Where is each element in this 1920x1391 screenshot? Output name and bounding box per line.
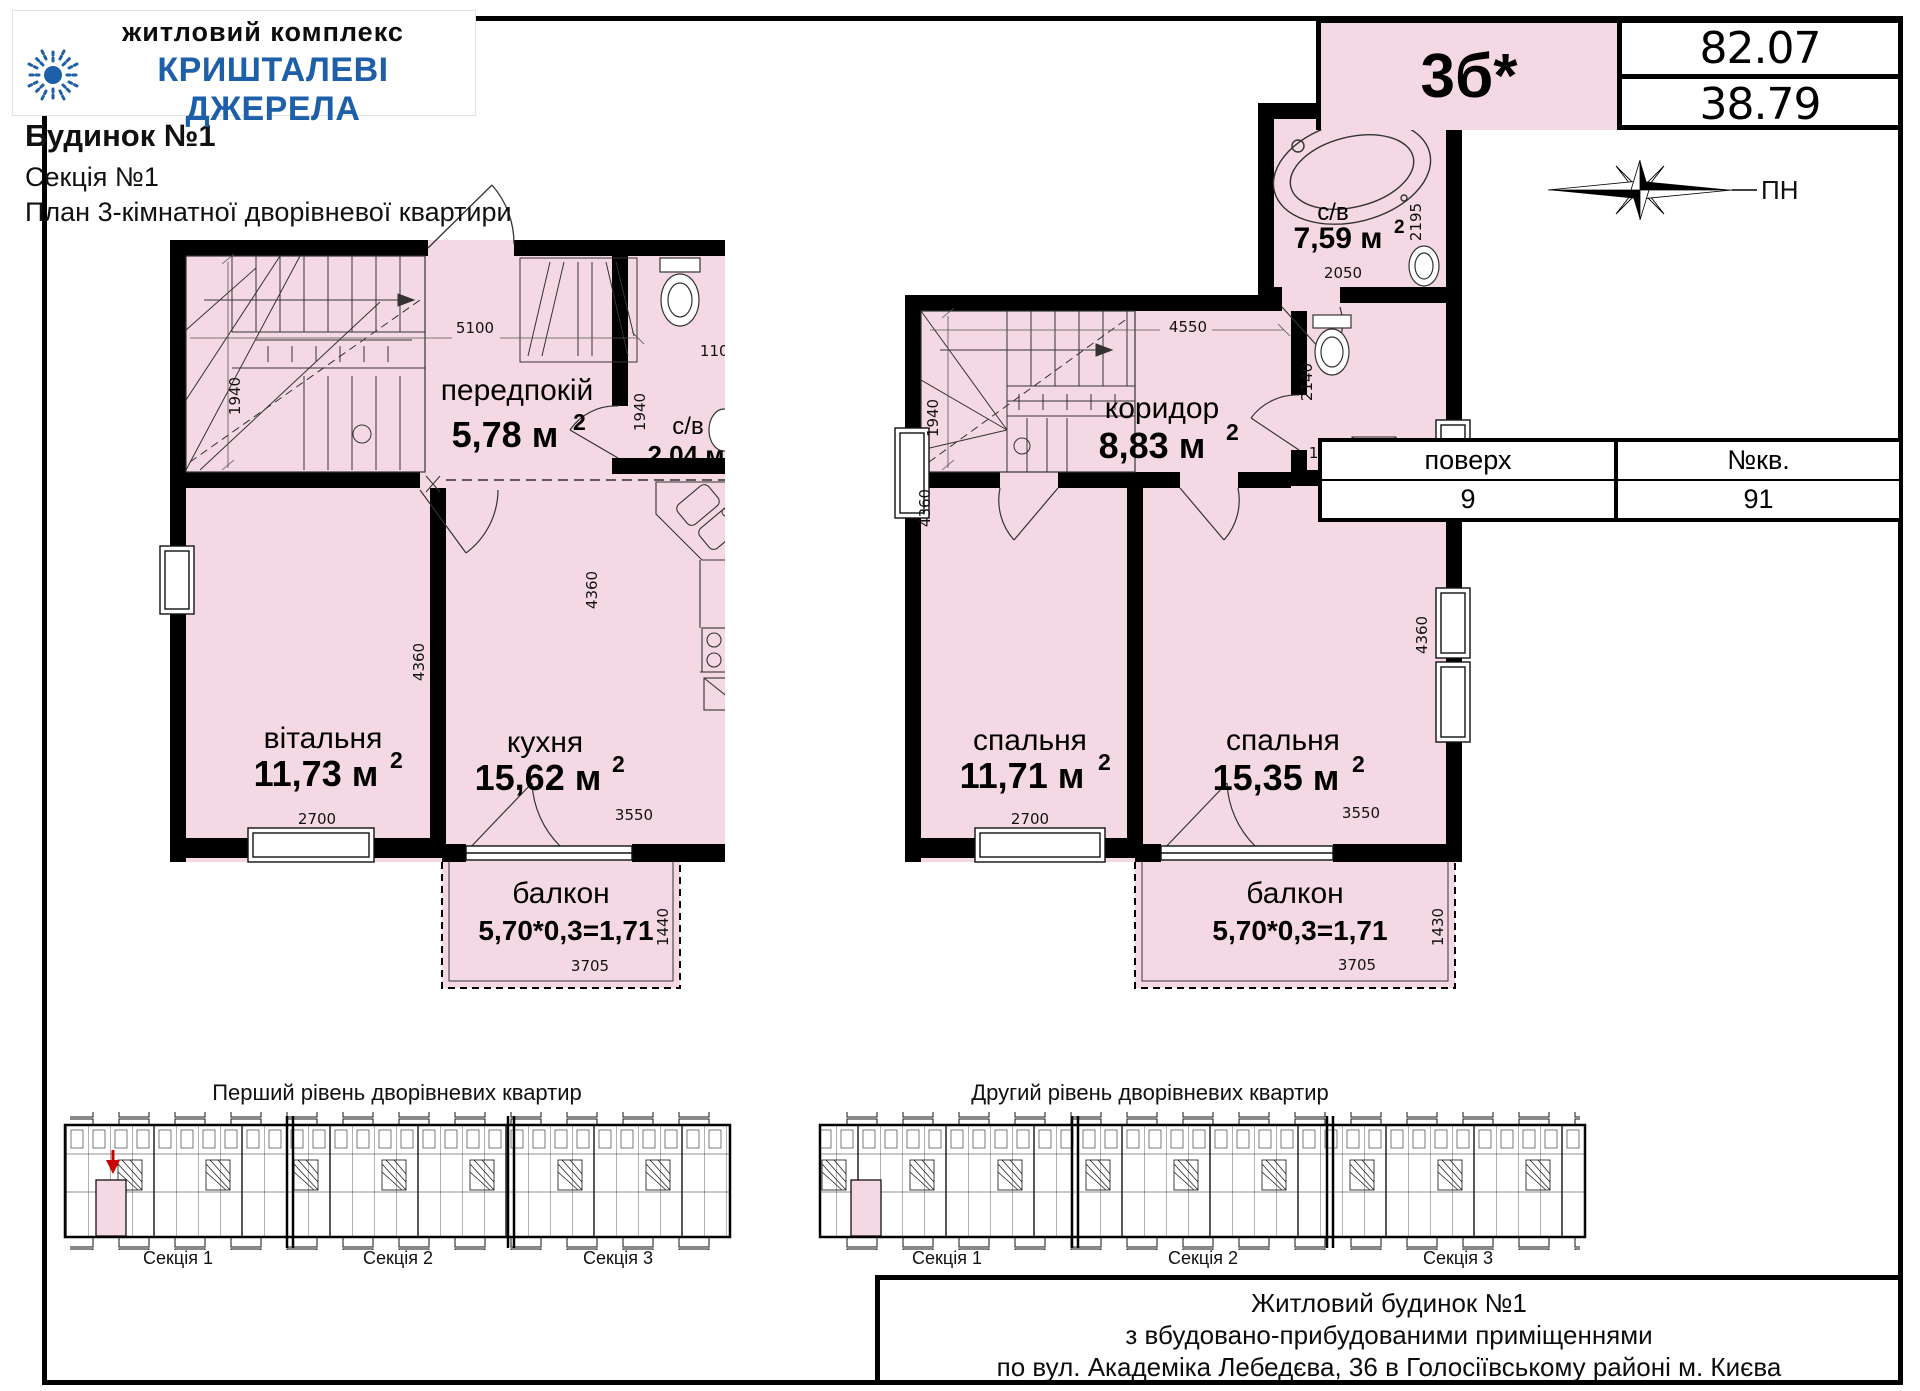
floor-value: 9	[1322, 481, 1614, 518]
room-hall-area: 5,78 м	[452, 414, 559, 455]
second-strip-section1-label: Секція 1	[877, 1248, 1017, 1269]
room-bath1-name: с/в	[672, 413, 703, 440]
first-strip-section2-label: Секція 2	[328, 1248, 468, 1269]
logo-subtitle: житловий комплекс	[83, 17, 443, 48]
room-bath2-area: 7,59 м	[1294, 222, 1383, 255]
building-overview-first-level	[60, 1100, 750, 1260]
second-strip-section3-label: Секція 3	[1388, 1248, 1528, 1269]
highlighted-apartment-1	[96, 1180, 126, 1236]
room-bed1-area-sup: 2	[1098, 749, 1111, 775]
dim-l1-top: 5100	[456, 319, 494, 337]
room-bath2-area-sup: 2	[1394, 217, 1405, 238]
dim-l1-kitchen-w: 3550	[615, 806, 653, 824]
header: Будинок №1 Секція №1 План 3-кімнатної дв…	[25, 118, 545, 232]
room-living-area: 11,73 м	[254, 753, 379, 794]
room-corridor-area: 8,83 м	[1099, 425, 1206, 466]
room-kitchen-name: кухня	[507, 726, 583, 759]
building-strip-2	[820, 1112, 1585, 1250]
compass: ПН	[1530, 145, 1810, 240]
apartment-column-header: №кв.	[1614, 442, 1899, 481]
room-corridor-area-sup: 2	[1226, 419, 1239, 445]
dim-l2-bath-w: 2050	[1324, 264, 1362, 282]
room-balcony1-name: балкон	[512, 877, 609, 910]
sink2	[1409, 246, 1439, 286]
unit-area-total: 82.07	[1617, 23, 1898, 79]
floor-column-header: поверх	[1322, 442, 1614, 481]
dim-l1-kitchen-h: 4360	[583, 571, 601, 609]
room-hall-area-sup: 2	[573, 409, 586, 435]
title-block-line3: по вул. Академіка Лебедєва, 36 в Голосії…	[880, 1351, 1898, 1383]
room-corridor-name: коридор	[1105, 392, 1219, 425]
dim-l2-bath-h: 2195	[1407, 203, 1425, 241]
building-strip-1	[65, 1112, 730, 1250]
room-bed2-area-sup: 2	[1352, 751, 1365, 777]
title-block-line1: Житловий будинок №1	[880, 1287, 1898, 1319]
room-living-area-sup: 2	[390, 747, 403, 773]
dim-l2-balcony-w: 3705	[1338, 956, 1376, 974]
dim-l2-bed2-h: 4360	[1413, 616, 1431, 654]
dim-l1-bath-w: 1100	[700, 342, 725, 360]
room-balcony2-area: 5,70*0,3=1,71	[1212, 915, 1387, 946]
room-bed1-name: спальня	[973, 724, 1087, 757]
room-bed1-area: 11,71 м	[960, 755, 1085, 796]
room-balcony1-area: 5,70*0,3=1,71	[478, 915, 653, 946]
logo-name: КРИШТАЛЕВІ ДЖЕРЕЛА	[75, 51, 471, 129]
first-strip-section1-label: Секція 1	[108, 1248, 248, 1269]
dim-l2-bed2-w: 3550	[1342, 804, 1380, 822]
room-living-name: вітальня	[264, 722, 383, 755]
dim-l1-balcony-h: 1440	[654, 908, 672, 946]
floor-apartment-table: поверх №кв. 9 91	[1318, 438, 1903, 522]
unit-badge: 3б* 82.07 38.79	[1316, 18, 1903, 130]
toilet1	[660, 258, 700, 326]
dim-l1-bath-pass: 1940	[631, 393, 649, 431]
room-bed2-name: спальня	[1226, 724, 1340, 757]
second-strip-section2-label: Секція 2	[1133, 1248, 1273, 1269]
floor-plan-sheet: житловий комплекс КРИШТАЛЕВІ ДЖЕРЕЛА Буд…	[0, 0, 1920, 1391]
first-strip-section3-label: Секція 3	[548, 1248, 688, 1269]
room-hall-name: передпокій	[441, 374, 594, 407]
dim-l1-stairs: 1940	[226, 377, 244, 415]
room-bath1-area: 2,04 м	[647, 440, 724, 470]
building-overview-second-level	[812, 1100, 1597, 1260]
dim-l2-bed1-w: 2700	[1011, 810, 1049, 828]
room-kitchen-area-sup: 2	[612, 751, 625, 777]
plan-level1: 5100 1940 1100 1940 2700 4360 3550 4360 …	[150, 160, 725, 1010]
room-kitchen-area: 15,62 м	[475, 757, 602, 798]
compass-rose	[1548, 160, 1757, 220]
logo: житловий комплекс КРИШТАЛЕВІ ДЖЕРЕЛА	[12, 10, 476, 116]
dim-l1-living-h: 4360	[410, 643, 428, 681]
apartment-value: 91	[1614, 481, 1899, 518]
dim-l2-top: 4550	[1169, 318, 1207, 336]
room-balcony2-name: балкон	[1246, 877, 1343, 910]
title-block: Житловий будинок №1 з вбудовано-прибудов…	[875, 1275, 1903, 1385]
title-block-line2: з вбудовано-прибудованими приміщеннями	[880, 1319, 1898, 1351]
unit-type: 3б*	[1321, 23, 1617, 130]
dim-l1-living-w: 2700	[298, 810, 336, 828]
unit-area-living: 38.79	[1617, 79, 1898, 130]
dim-l2-stairs: 1940	[924, 399, 942, 437]
dim-l1-balcony-w: 3705	[571, 957, 609, 975]
north-label: ПН	[1761, 175, 1798, 205]
highlighted-apartment-2	[851, 1180, 881, 1236]
plan-title: План 3-кімнатної дворівневої квартири	[25, 197, 545, 228]
dim-l2-wc-h: 2140	[1298, 363, 1316, 401]
plan-level2: 4550 1940 2050 2195 2140 1650 2700 4360 …	[885, 95, 1485, 1010]
dim-l2-balcony-h: 1430	[1429, 908, 1447, 946]
room-bed2-area: 15,35 м	[1213, 757, 1340, 798]
dim-l2-bed1-h: 4360	[916, 489, 934, 527]
toilet2	[1313, 315, 1351, 375]
section-title: Секція №1	[25, 162, 545, 193]
